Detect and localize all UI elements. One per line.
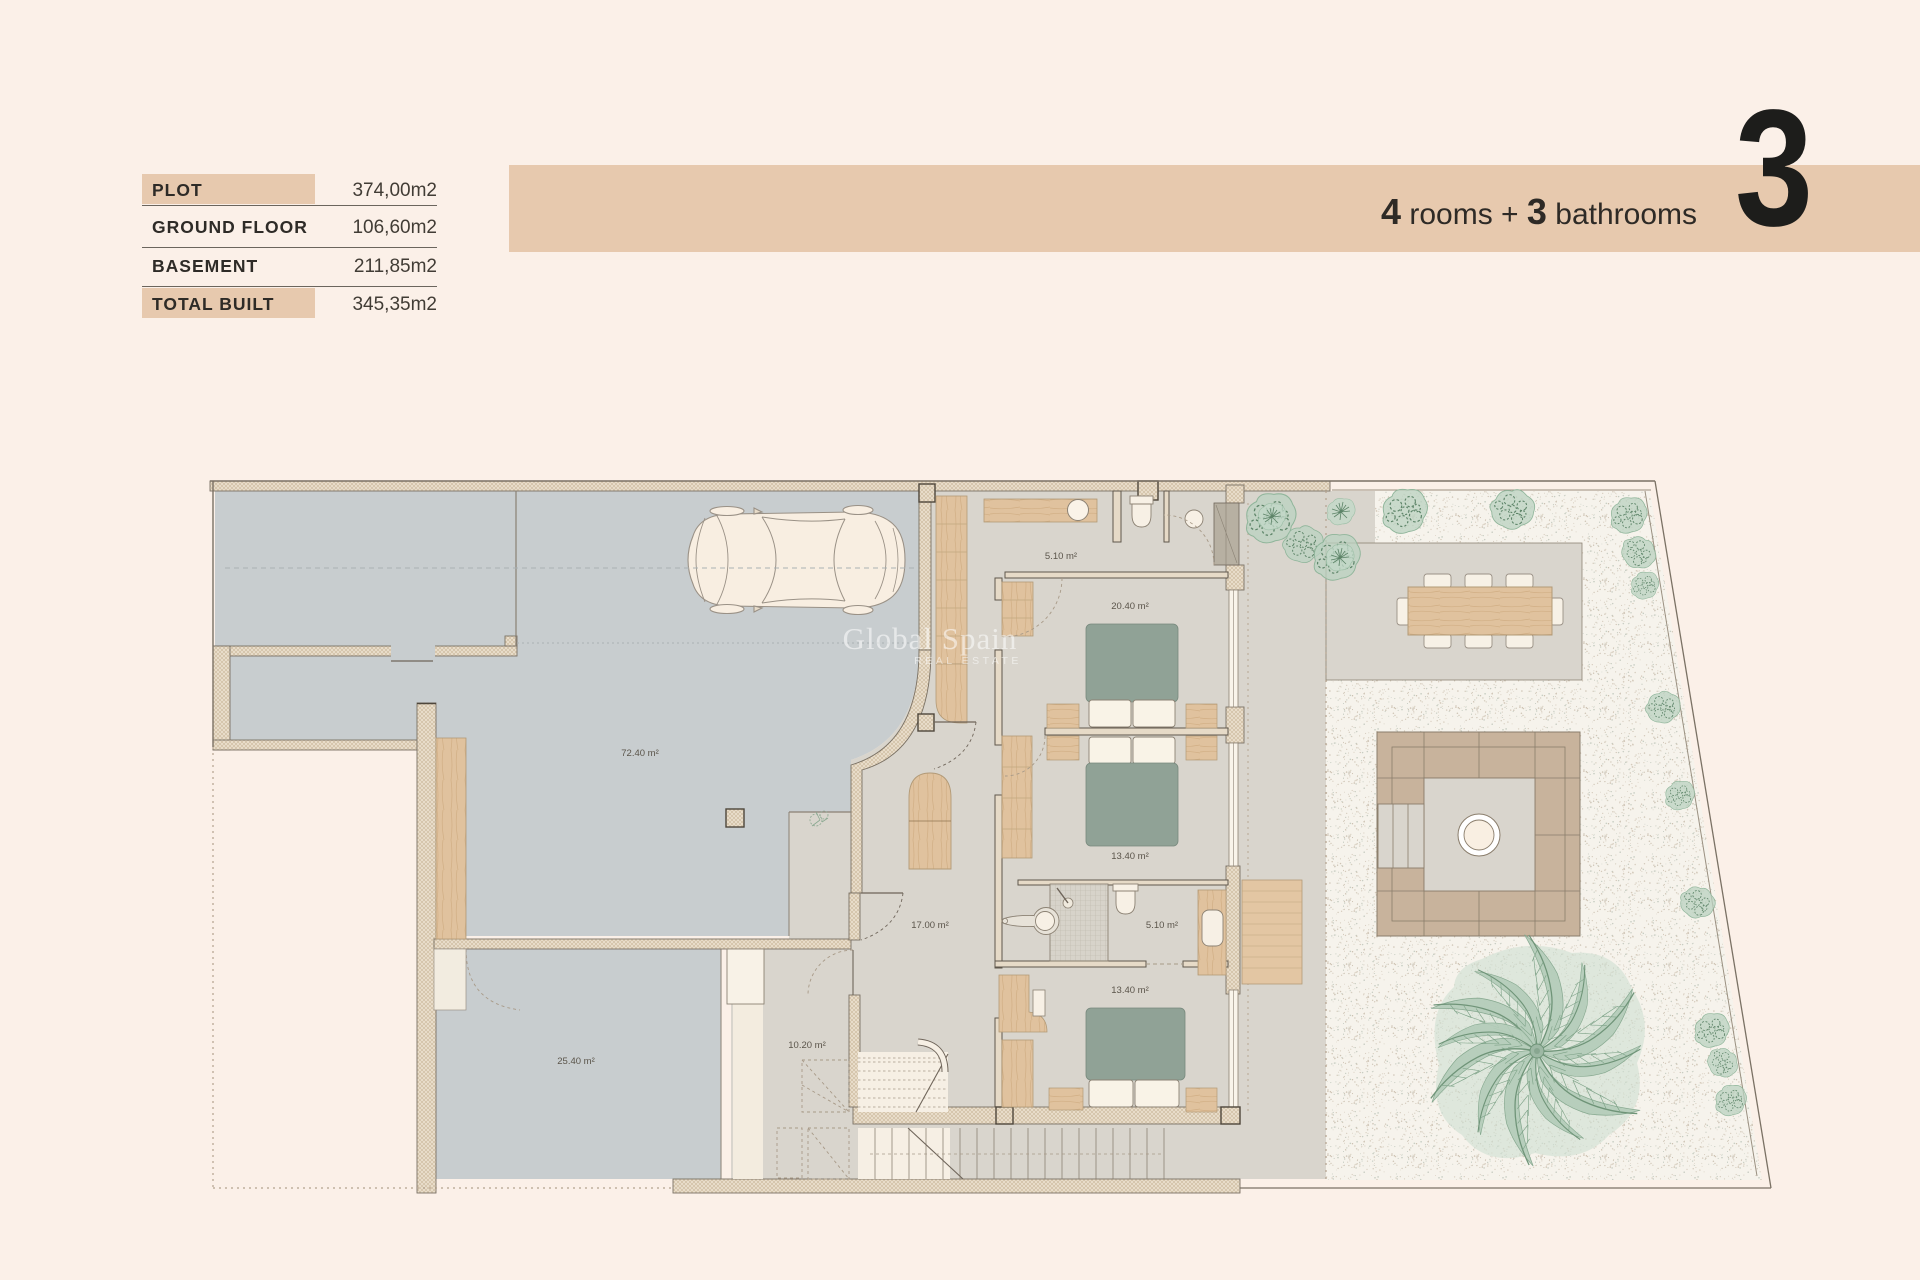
- svg-text:10.20 m²: 10.20 m²: [788, 1040, 826, 1051]
- svg-text:3: 3: [1735, 76, 1813, 261]
- svg-text:REAL ESTATE: REAL ESTATE: [914, 655, 1022, 667]
- svg-text:345,35m2: 345,35m2: [352, 294, 437, 315]
- svg-text:5.10 m²: 5.10 m²: [1045, 551, 1077, 562]
- svg-text:211,85m2: 211,85m2: [354, 256, 437, 277]
- svg-text:13.40 m²: 13.40 m²: [1111, 851, 1149, 862]
- svg-text:BASEMENT: BASEMENT: [152, 256, 258, 276]
- svg-text:25.40 m²: 25.40 m²: [557, 1056, 595, 1067]
- svg-text:4 rooms + 3 bathrooms: 4 rooms + 3 bathrooms: [1381, 191, 1697, 232]
- svg-text:17.00 m²: 17.00 m²: [911, 920, 949, 931]
- svg-text:Global Spain: Global Spain: [843, 621, 1018, 656]
- svg-text:106,60m2: 106,60m2: [352, 217, 437, 238]
- svg-text:5.10 m²: 5.10 m²: [1146, 920, 1178, 931]
- svg-text:TOTAL BUILT: TOTAL BUILT: [152, 294, 274, 314]
- svg-text:GROUND FLOOR: GROUND FLOOR: [152, 217, 308, 237]
- svg-text:72.40 m²: 72.40 m²: [621, 748, 659, 759]
- svg-text:13.40 m²: 13.40 m²: [1111, 985, 1149, 996]
- svg-text:PLOT: PLOT: [152, 180, 203, 200]
- svg-text:374,00m2: 374,00m2: [352, 180, 437, 201]
- svg-text:20.40 m²: 20.40 m²: [1111, 601, 1149, 612]
